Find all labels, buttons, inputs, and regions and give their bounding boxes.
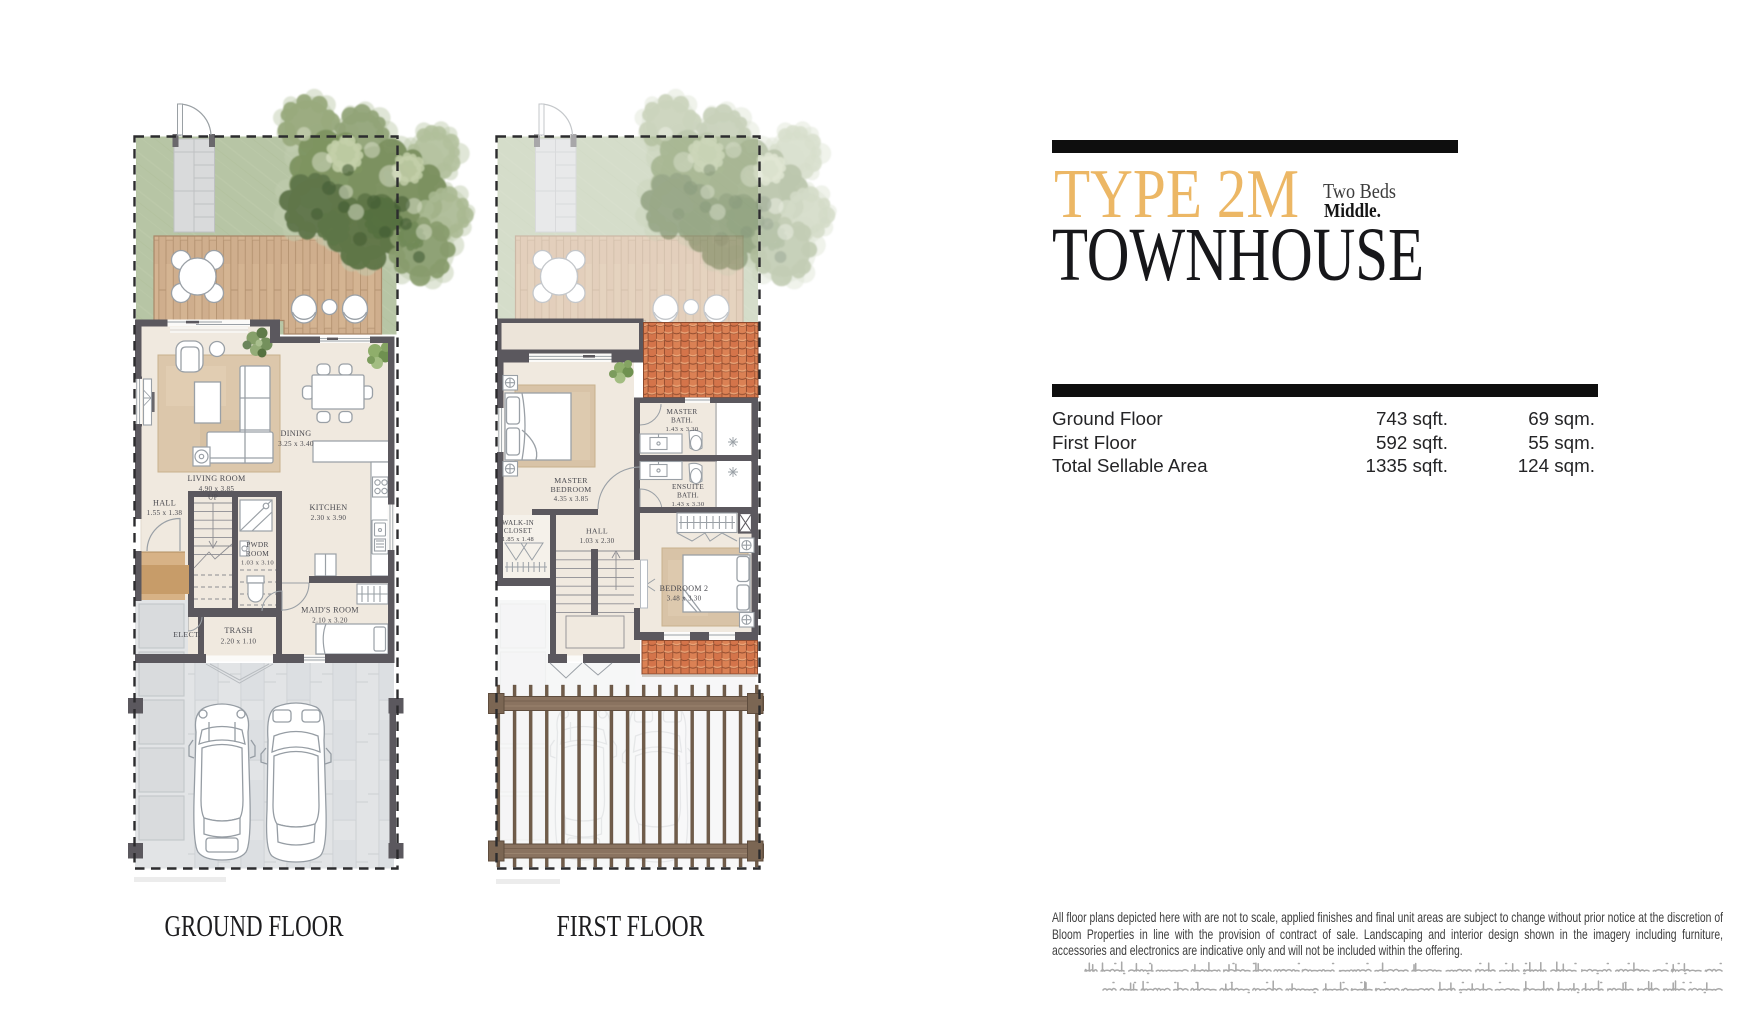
svg-text:BEDROOM: BEDROOM bbox=[550, 485, 591, 494]
svg-text:UP: UP bbox=[208, 493, 218, 502]
svg-text:CLOSET: CLOSET bbox=[504, 527, 533, 535]
svg-text:2.10 x 3.20: 2.10 x 3.20 bbox=[312, 617, 348, 625]
svg-text:1.03 x 2.30: 1.03 x 2.30 bbox=[580, 537, 615, 545]
svg-text:BATH.: BATH. bbox=[671, 417, 693, 425]
svg-text:3.25 x 3.40: 3.25 x 3.40 bbox=[278, 440, 314, 448]
svg-text:DINING: DINING bbox=[281, 429, 312, 438]
svg-text:TOWNHOUSE: TOWNHOUSE bbox=[1052, 213, 1424, 297]
svg-text:GROUND FLOOR: GROUND FLOOR bbox=[165, 908, 344, 943]
svg-text:HALL: HALL bbox=[586, 527, 608, 536]
svg-text:Middle.: Middle. bbox=[1324, 200, 1381, 222]
svg-text:FIRST FLOOR: FIRST FLOOR bbox=[557, 908, 705, 943]
svg-text:ROOM: ROOM bbox=[246, 549, 270, 558]
svg-text:MASTER: MASTER bbox=[667, 408, 698, 416]
svg-text:1.85 x 1.48: 1.85 x 1.48 bbox=[502, 536, 534, 543]
svg-text:4.35 x 3.85: 4.35 x 3.85 bbox=[554, 495, 589, 503]
svg-text:1.03 x 3.10: 1.03 x 3.10 bbox=[241, 560, 274, 567]
svg-text:1.43 x 3.30: 1.43 x 3.30 bbox=[672, 501, 705, 508]
svg-text:BATH.: BATH. bbox=[677, 492, 699, 500]
svg-text:MAID'S ROOM: MAID'S ROOM bbox=[301, 606, 359, 615]
svg-text:WALK-IN: WALK-IN bbox=[502, 519, 534, 527]
svg-text:1.43 x 3.30: 1.43 x 3.30 bbox=[666, 426, 699, 433]
svg-text:HALL: HALL bbox=[153, 499, 176, 508]
svg-text:ENSUITE: ENSUITE bbox=[672, 483, 704, 491]
svg-text:TRASH: TRASH bbox=[224, 626, 252, 635]
svg-text:1.55 x 1.38: 1.55 x 1.38 bbox=[147, 509, 183, 517]
svg-text:3.48 x 3.30: 3.48 x 3.30 bbox=[667, 595, 702, 603]
svg-text:2.20 x 1.10: 2.20 x 1.10 bbox=[221, 638, 257, 646]
svg-text:KITCHEN: KITCHEN bbox=[309, 503, 347, 512]
svg-text:LIVING ROOM: LIVING ROOM bbox=[187, 474, 246, 483]
svg-text:BEDROOM 2: BEDROOM 2 bbox=[660, 584, 709, 593]
svg-text:2.30 x 3.90: 2.30 x 3.90 bbox=[311, 514, 347, 522]
svg-text:ELECT.: ELECT. bbox=[173, 630, 200, 639]
svg-text:PWDR: PWDR bbox=[246, 540, 269, 549]
svg-text:MASTER: MASTER bbox=[554, 476, 588, 485]
